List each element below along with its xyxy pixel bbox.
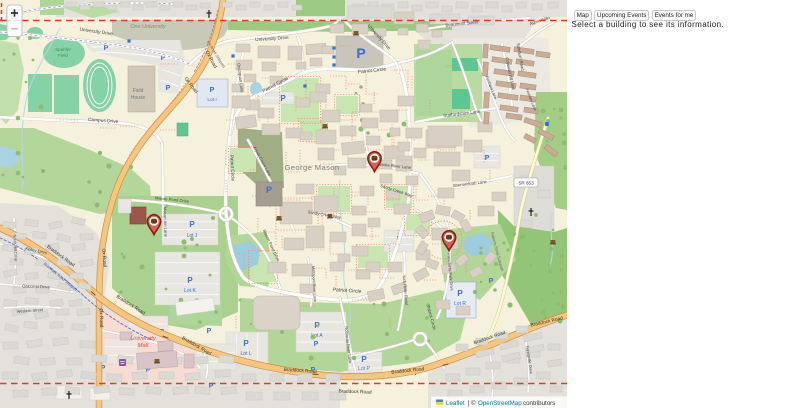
svg-text:P: P	[166, 85, 171, 92]
svg-text:Braddock Road: Braddock Road	[338, 388, 372, 395]
svg-text:contributors: contributors	[523, 400, 555, 407]
svg-text:P: P	[189, 220, 195, 229]
svg-text:P: P	[314, 341, 319, 348]
svg-text:Field: Field	[58, 53, 68, 58]
svg-text:Spuhler: Spuhler	[55, 47, 71, 52]
svg-text:Leaflet: Leaflet	[446, 400, 465, 407]
svg-text:P: P	[457, 289, 463, 298]
svg-text:Mason Inn Lane: Mason Inn Lane	[162, 207, 168, 238]
svg-text:P: P	[489, 278, 494, 285]
svg-text:Lot K: Lot K	[184, 288, 196, 294]
svg-text:P: P	[210, 87, 215, 94]
svg-text:P: P	[280, 94, 286, 103]
svg-text:Lot L: Lot L	[240, 351, 251, 357]
svg-text:University: University	[130, 336, 157, 342]
svg-text:SR 653: SR 653	[518, 181, 534, 186]
svg-text:P: P	[361, 355, 367, 364]
svg-text:Lot I: Lot I	[207, 97, 216, 103]
svg-text:P: P	[266, 185, 272, 195]
svg-text:Field: Field	[133, 88, 144, 94]
svg-text:P: P	[485, 155, 490, 162]
svg-text:P: P	[243, 339, 249, 348]
svg-text:House: House	[131, 95, 146, 101]
svg-text:P: P	[104, 45, 109, 52]
svg-text:P: P	[356, 45, 365, 61]
svg-text:One University: One University	[130, 24, 166, 30]
svg-text:P: P	[187, 276, 193, 285]
svg-text:Lot P: Lot P	[358, 366, 370, 372]
svg-text:©: ©	[471, 400, 476, 407]
svg-text:Oakcrest Drive: Oakcrest Drive	[22, 284, 51, 290]
svg-text:P: P	[207, 328, 212, 335]
svg-text:OpenStreetMap: OpenStreetMap	[478, 400, 522, 407]
svg-text:George Mason: George Mason	[284, 163, 339, 172]
svg-text:Mall: Mall	[138, 343, 149, 349]
svg-text:Ox Road: Ox Road	[98, 308, 105, 327]
